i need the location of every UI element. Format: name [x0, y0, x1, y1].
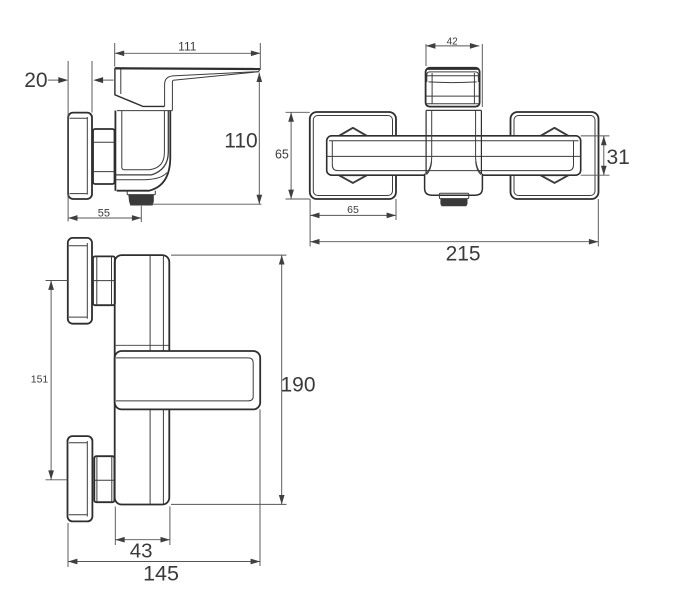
- svg-text:111: 111: [178, 40, 197, 54]
- svg-text:55: 55: [98, 208, 110, 220]
- svg-text:43: 43: [130, 540, 153, 563]
- svg-text:151: 151: [31, 374, 49, 386]
- svg-text:20: 20: [24, 69, 47, 92]
- svg-text:145: 145: [143, 562, 179, 586]
- svg-text:190: 190: [281, 374, 316, 397]
- svg-text:110: 110: [224, 130, 257, 153]
- svg-text:65: 65: [275, 147, 289, 161]
- svg-text:65: 65: [347, 204, 359, 216]
- svg-text:42: 42: [447, 36, 459, 47]
- svg-text:215: 215: [446, 243, 481, 266]
- svg-text:31: 31: [607, 146, 630, 169]
